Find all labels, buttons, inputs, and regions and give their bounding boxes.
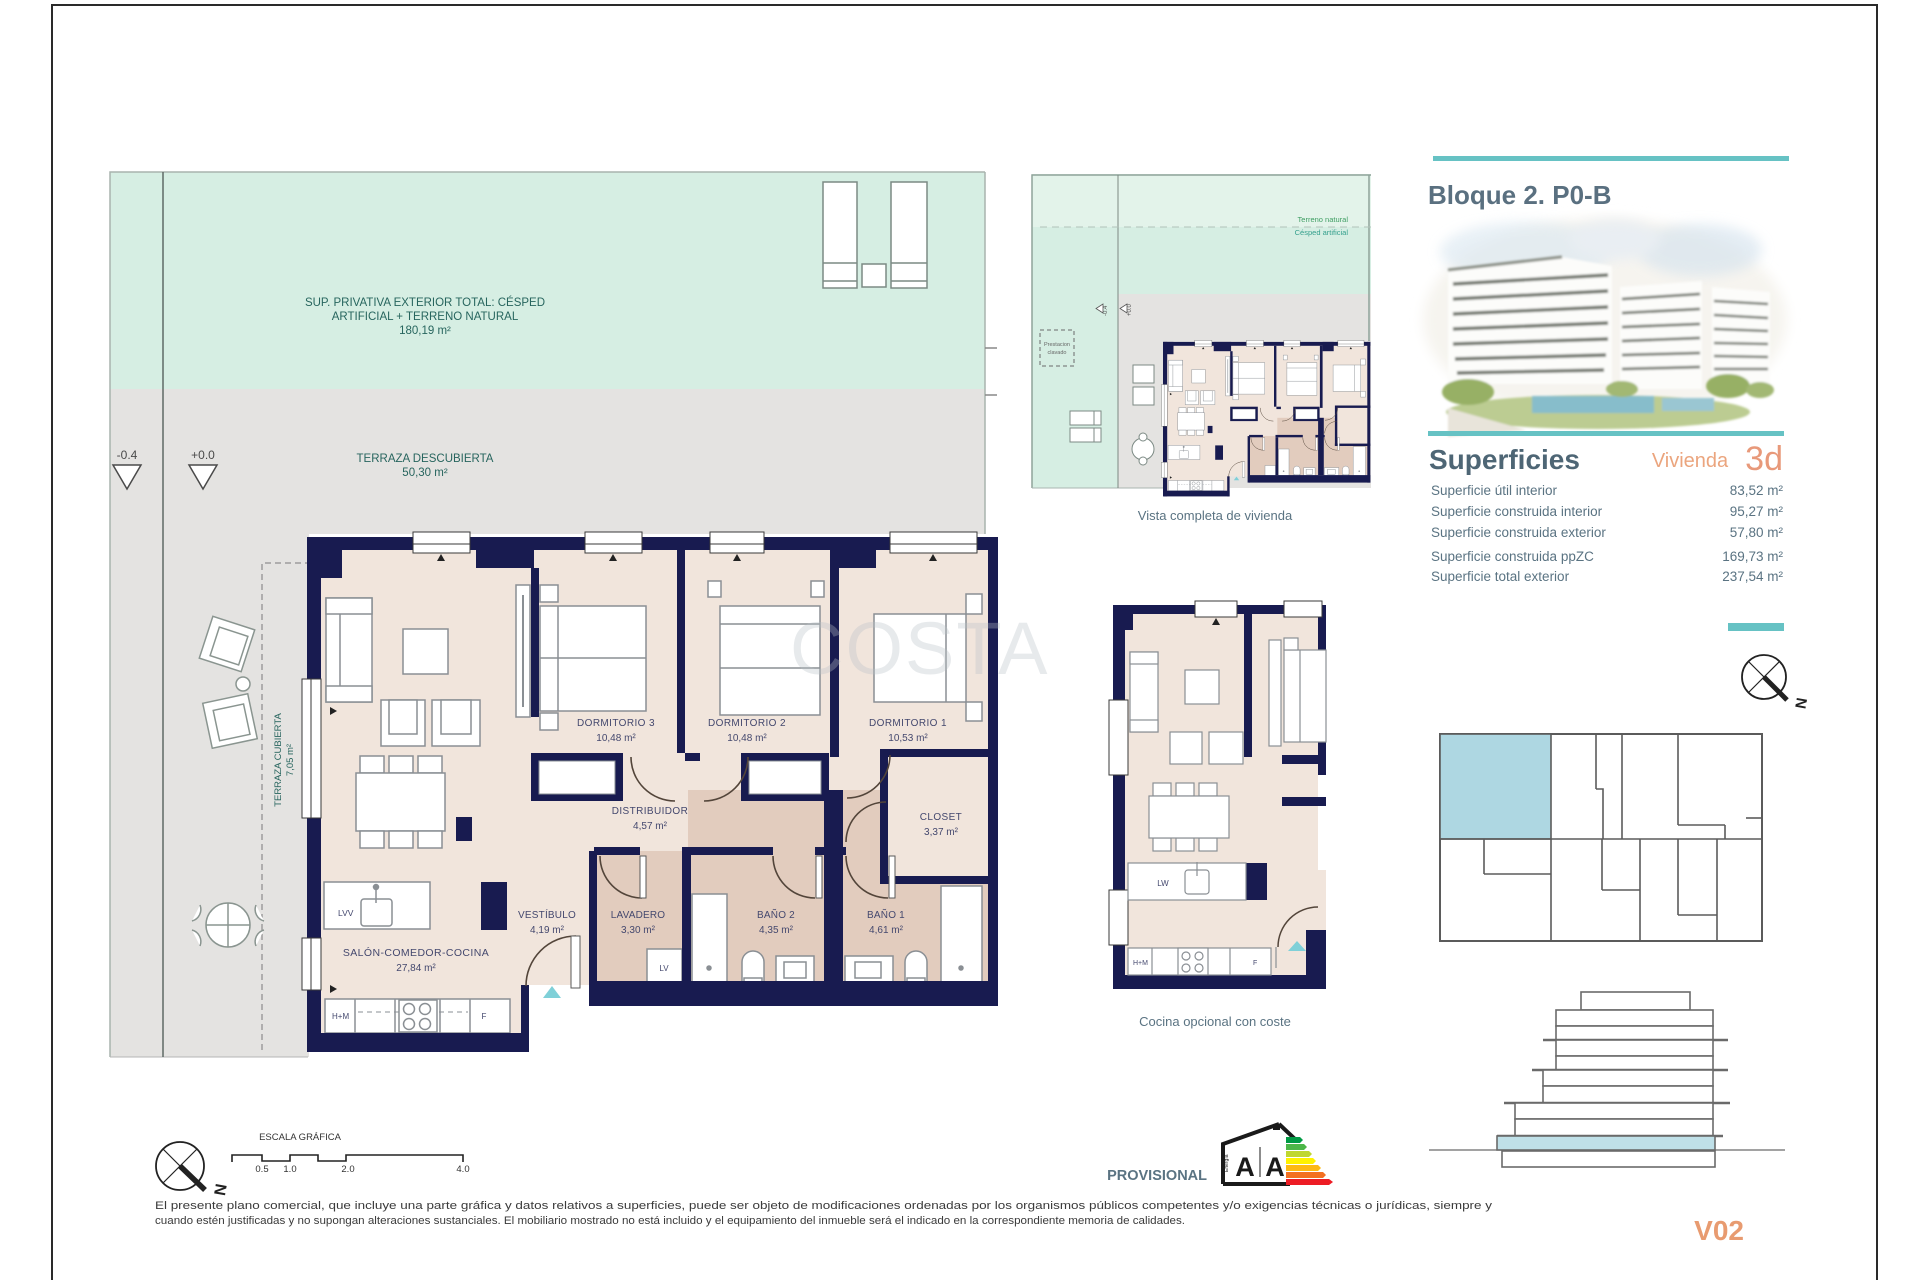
svg-text:Superficie construida ppZC: Superficie construida ppZC — [1431, 549, 1594, 564]
svg-text:LW: LW — [1157, 879, 1169, 888]
svg-text:4,19 m²: 4,19 m² — [530, 925, 565, 936]
svg-text:Bloque 2. P0-B: Bloque 2. P0-B — [1428, 180, 1611, 210]
svg-text:TERRAZA CUBIERTA: TERRAZA CUBIERTA — [273, 713, 284, 807]
svg-text:83,52 m²: 83,52 m² — [1730, 483, 1784, 498]
svg-text:Energía: Energía — [1224, 1154, 1230, 1172]
svg-text:Superficies: Superficies — [1429, 444, 1580, 475]
svg-text:-0.4: -0.4 — [1103, 305, 1109, 316]
svg-text:Superficie construida interior: Superficie construida interior — [1431, 504, 1603, 519]
svg-text:PROVISIONAL: PROVISIONAL — [1107, 1168, 1207, 1184]
svg-text:COSTA: COSTA — [790, 607, 1049, 690]
svg-text:LV: LV — [659, 964, 669, 973]
svg-text:VESTÍBULO: VESTÍBULO — [518, 908, 576, 921]
svg-text:BAÑO 2: BAÑO 2 — [757, 908, 795, 921]
svg-text:4,57 m²: 4,57 m² — [633, 821, 668, 832]
svg-text:237,54 m²: 237,54 m² — [1722, 569, 1783, 584]
svg-text:Césped artificial: Césped artificial — [1295, 228, 1349, 237]
svg-text:+0.0: +0.0 — [1127, 303, 1133, 316]
svg-text:A: A — [1265, 1152, 1285, 1182]
svg-text:Superficie construida exterior: Superficie construida exterior — [1431, 525, 1606, 540]
svg-text:F: F — [482, 1012, 487, 1021]
svg-text:SUP. PRIVATIVA EXTERIOR TOTAL:: SUP. PRIVATIVA EXTERIOR TOTAL: CÉSPED — [305, 296, 545, 309]
svg-text:0.5: 0.5 — [255, 1164, 268, 1175]
svg-text:DORMITORIO 1: DORMITORIO 1 — [869, 718, 947, 729]
svg-text:-0.4: -0.4 — [117, 448, 138, 462]
svg-text:DORMITORIO 3: DORMITORIO 3 — [577, 718, 655, 729]
svg-text:180,19 m²: 180,19 m² — [399, 325, 451, 337]
svg-text:DISTRIBUIDOR: DISTRIBUIDOR — [612, 806, 688, 817]
svg-text:10,53 m²: 10,53 m² — [888, 733, 928, 744]
svg-text:H+M: H+M — [1133, 960, 1148, 967]
svg-text:7,05 m²: 7,05 m² — [285, 744, 296, 776]
svg-text:+0.0: +0.0 — [191, 448, 215, 462]
svg-text:Vista completa de vivienda: Vista completa de vivienda — [1138, 508, 1293, 523]
svg-text:4,61 m²: 4,61 m² — [869, 925, 904, 936]
svg-text:4.0: 4.0 — [456, 1164, 469, 1175]
svg-text:2.0: 2.0 — [341, 1164, 354, 1175]
svg-text:Superficie útil interior: Superficie útil interior — [1431, 483, 1558, 498]
svg-text:4,35 m²: 4,35 m² — [759, 925, 794, 936]
svg-text:Vivienda: Vivienda — [1652, 450, 1729, 472]
svg-text:ARTIFICIAL + TERRENO NATURAL: ARTIFICIAL + TERRENO NATURAL — [332, 311, 519, 323]
svg-text:10,48 m²: 10,48 m² — [596, 733, 636, 744]
svg-text:F: F — [1253, 960, 1257, 967]
svg-text:95,27 m²: 95,27 m² — [1730, 504, 1784, 519]
svg-text:57,80 m²: 57,80 m² — [1730, 525, 1784, 540]
svg-text:27,84 m²: 27,84 m² — [396, 963, 436, 974]
svg-text:Terreno natural: Terreno natural — [1298, 215, 1349, 224]
svg-text:H+M: H+M — [332, 1012, 349, 1021]
svg-text:El presente plano comercial, q: El presente plano comercial, que incluye… — [155, 1200, 1492, 1212]
svg-text:V02: V02 — [1694, 1215, 1744, 1246]
svg-text:3,37 m²: 3,37 m² — [924, 827, 959, 838]
svg-text:50,30 m²: 50,30 m² — [402, 467, 448, 479]
svg-text:LAVADERO: LAVADERO — [611, 910, 666, 921]
svg-text:DORMITORIO 2: DORMITORIO 2 — [708, 718, 786, 729]
svg-text:3d: 3d — [1745, 440, 1783, 478]
svg-text:Prestacion: Prestacion — [1044, 342, 1070, 348]
svg-text:10,48 m²: 10,48 m² — [727, 733, 767, 744]
svg-text:SALÓN-COMEDOR-COCINA: SALÓN-COMEDOR-COCINA — [343, 946, 489, 959]
svg-text:Cocina opcional con coste: Cocina opcional con coste — [1139, 1014, 1291, 1029]
svg-text:Superficie total exterior: Superficie total exterior — [1431, 569, 1570, 584]
svg-text:A: A — [1235, 1152, 1255, 1182]
svg-text:ESCALA GRÁFICA: ESCALA GRÁFICA — [259, 1132, 341, 1143]
svg-text:BAÑO 1: BAÑO 1 — [867, 908, 905, 921]
svg-text:169,73 m²: 169,73 m² — [1722, 549, 1783, 564]
svg-text:clavado: clavado — [1048, 350, 1067, 356]
svg-text:LVV: LVV — [338, 908, 354, 918]
svg-text:1.0: 1.0 — [283, 1164, 296, 1175]
svg-text:cuando estén justificadas y no: cuando estén justificadas y no supongan … — [155, 1215, 1185, 1227]
svg-text:CLOSET: CLOSET — [920, 812, 962, 823]
svg-text:TERRAZA DESCUBIERTA: TERRAZA DESCUBIERTA — [357, 453, 494, 465]
svg-text:3,30 m²: 3,30 m² — [621, 925, 656, 936]
